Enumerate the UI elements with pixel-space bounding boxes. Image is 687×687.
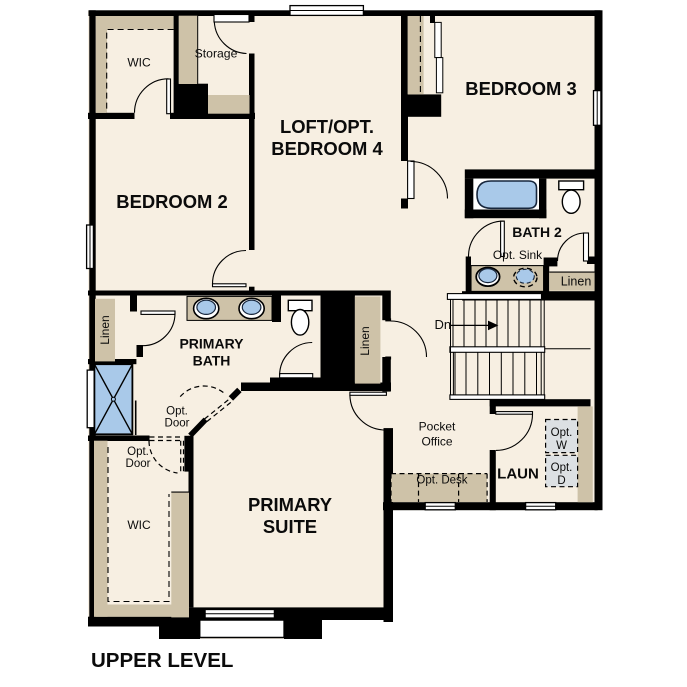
svg-text:BATH 2: BATH 2 [512, 224, 562, 240]
svg-text:Pocket: Pocket [419, 420, 456, 434]
svg-text:BEDROOM 2: BEDROOM 2 [116, 191, 227, 212]
svg-text:D: D [557, 475, 565, 487]
svg-text:WIC: WIC [127, 56, 151, 70]
svg-text:PRIMARY: PRIMARY [179, 336, 244, 352]
svg-text:Opt.: Opt. [127, 446, 149, 458]
svg-text:BEDROOM 4: BEDROOM 4 [271, 138, 383, 159]
svg-text:Door: Door [165, 418, 190, 430]
svg-text:LOFT/OPT.: LOFT/OPT. [280, 116, 374, 137]
svg-text:BATH: BATH [193, 353, 231, 369]
svg-text:WIC: WIC [127, 518, 151, 532]
svg-text:Door: Door [126, 458, 151, 470]
svg-text:Opt. Sink: Opt. Sink [493, 248, 543, 262]
svg-text:BEDROOM 3: BEDROOM 3 [465, 78, 576, 99]
svg-text:Office: Office [421, 435, 452, 449]
svg-text:Opt.: Opt. [551, 427, 573, 439]
svg-text:W: W [556, 440, 567, 452]
svg-text:Opt.: Opt. [166, 406, 188, 418]
svg-text:Dn: Dn [435, 317, 452, 332]
svg-text:Storage: Storage [195, 47, 238, 61]
svg-text:UPPER LEVEL: UPPER LEVEL [91, 649, 233, 672]
svg-text:Opt.: Opt. [551, 462, 573, 474]
svg-text:Linen: Linen [358, 326, 372, 355]
svg-text:Opt. Desk: Opt. Desk [416, 475, 467, 487]
svg-text:Linen: Linen [98, 315, 112, 344]
svg-text:Linen: Linen [561, 275, 592, 289]
svg-text:LAUN: LAUN [497, 466, 539, 483]
svg-text:SUITE: SUITE [263, 516, 317, 537]
svg-text:PRIMARY: PRIMARY [248, 494, 332, 515]
